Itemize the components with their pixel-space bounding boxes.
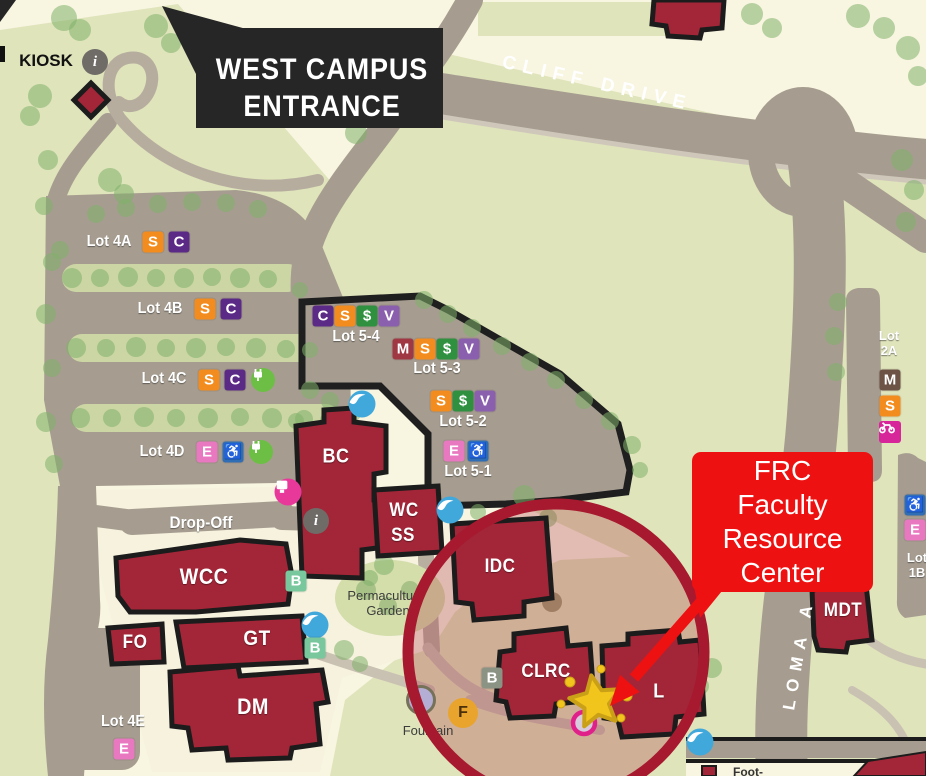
building-label-wcc: WCC bbox=[180, 564, 229, 590]
wheelchair-icon: ♿ bbox=[468, 441, 489, 462]
permit-badge-v: V bbox=[379, 306, 400, 327]
permit-badge-e: E bbox=[905, 520, 926, 541]
amenity-icon bbox=[275, 479, 302, 506]
lot-5-2-label: Lot 5-2 bbox=[439, 413, 486, 431]
bus-stop-badge: B bbox=[482, 668, 503, 689]
wheelchair-icon: ♿ bbox=[223, 442, 244, 463]
permit-badge-paid: $ bbox=[437, 339, 458, 360]
permaculture-label-2: Garden bbox=[366, 604, 409, 618]
bird-icon bbox=[687, 729, 714, 756]
permit-badge-e: E bbox=[444, 441, 465, 462]
permit-badge-c: C bbox=[225, 370, 246, 391]
bird-icon bbox=[302, 612, 329, 639]
lot-5-4-label: Lot 5-4 bbox=[332, 328, 379, 346]
building-label-gt: GT bbox=[243, 627, 270, 651]
building-gt bbox=[176, 616, 306, 668]
building-label-l: L bbox=[653, 681, 664, 704]
lot-4c-label: Lot 4C bbox=[142, 370, 187, 388]
fountain-icon bbox=[406, 685, 436, 715]
permaculture-label-1: Permaculture bbox=[347, 589, 424, 603]
permit-badge-c: C bbox=[221, 299, 242, 320]
wheelchair-icon: ♿ bbox=[905, 495, 926, 516]
lot-2a-label-2: 2A bbox=[881, 344, 898, 358]
lot-4d-label: Lot 4D bbox=[140, 443, 185, 461]
bird-icon bbox=[437, 497, 464, 524]
permit-badge-m: M bbox=[880, 370, 901, 391]
permit-badge-paid: $ bbox=[453, 391, 474, 412]
building-label-dm: DM bbox=[237, 694, 269, 720]
permit-badge-c: C bbox=[169, 232, 190, 253]
permit-badge-v: V bbox=[459, 339, 480, 360]
lot-1b-label-2: 1B bbox=[909, 566, 926, 580]
lot-1b-label-1: Lot bbox=[907, 551, 926, 565]
permit-badge-paid: $ bbox=[357, 306, 378, 327]
permit-badge-s: S bbox=[415, 339, 436, 360]
building-label-clrc: CLRC bbox=[521, 661, 570, 683]
permit-badge-s: S bbox=[195, 299, 216, 320]
permit-badge-m: M bbox=[393, 339, 414, 360]
motorcycle-icon bbox=[879, 421, 901, 443]
lot-5-3-label: Lot 5-3 bbox=[413, 360, 460, 378]
lot-5-1-label: Lot 5-1 bbox=[444, 463, 491, 481]
ev-charging-icon bbox=[251, 368, 275, 392]
info-icon: i bbox=[82, 49, 108, 75]
info-icon: i bbox=[303, 508, 329, 534]
bottom-road bbox=[686, 737, 926, 758]
permit-badge-e: E bbox=[197, 442, 218, 463]
frc-callout: FRC Faculty Resource Center bbox=[692, 452, 873, 592]
lot-4b-label: Lot 4B bbox=[138, 300, 183, 318]
building-label-fo: FO bbox=[123, 632, 148, 654]
legend-footpath-swatch bbox=[702, 766, 716, 776]
lot-4a-label: Lot 4A bbox=[87, 233, 132, 251]
banner-line1: WEST CAMPUS bbox=[216, 53, 428, 87]
drop-off-label: Drop-Off bbox=[170, 513, 233, 533]
building-label-bc: BC bbox=[323, 446, 350, 469]
lot-2a-label-1: Lot bbox=[879, 329, 899, 343]
ev-charging-icon bbox=[249, 440, 273, 464]
frc-callout-line4: Center bbox=[740, 556, 824, 590]
permit-badge-s: S bbox=[880, 396, 901, 417]
permit-badge-v: V bbox=[475, 391, 496, 412]
building-label-wc: WC bbox=[389, 500, 418, 522]
permit-badge-e: E bbox=[114, 739, 135, 760]
frc-callout-line3: Resource bbox=[723, 522, 843, 556]
building-label-idc: IDC bbox=[485, 556, 516, 578]
permit-badge-s: S bbox=[143, 232, 164, 253]
lot-4e-label: Lot 4E bbox=[101, 713, 145, 731]
bird-icon bbox=[349, 391, 376, 418]
banner-line2: ENTRANCE bbox=[243, 90, 400, 124]
permit-badge-s: S bbox=[431, 391, 452, 412]
building-label-mdt: MDT bbox=[824, 600, 862, 622]
bus-stop-badge: B bbox=[305, 638, 326, 659]
permit-badge-c: C bbox=[313, 306, 334, 327]
frc-callout-line1: FRC bbox=[754, 454, 812, 488]
permit-badge-s: S bbox=[335, 306, 356, 327]
bus-stop-badge: B bbox=[286, 571, 307, 592]
permit-badge-s: S bbox=[199, 370, 220, 391]
frc-callout-line2: Faculty bbox=[737, 488, 827, 522]
kiosk-label: KIOSK bbox=[19, 51, 73, 71]
legend-footpath-label: Foot- bbox=[733, 765, 763, 776]
food-icon: F bbox=[448, 698, 478, 728]
campus-map: WEST CAMPUS ENTRANCE CLIFF DRIVE LOMA A … bbox=[0, 0, 926, 776]
building-label-ss: SS bbox=[391, 525, 415, 547]
fountain-label: Fountain bbox=[403, 724, 454, 738]
